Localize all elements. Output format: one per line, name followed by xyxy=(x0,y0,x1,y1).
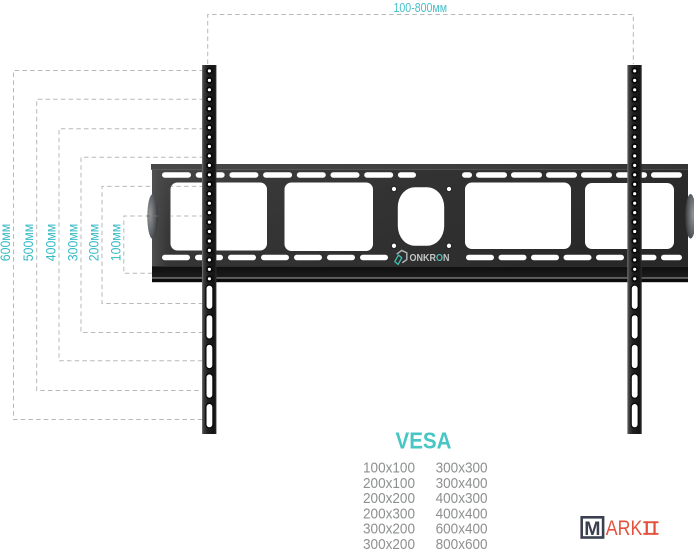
svg-text:400мм: 400мм xyxy=(44,224,59,262)
svg-text:300x300: 300x300 xyxy=(436,461,488,477)
svg-text:ONKRON: ONKRON xyxy=(410,252,450,264)
svg-text:200x300: 200x300 xyxy=(363,506,415,522)
svg-text:400x400: 400x400 xyxy=(436,506,488,522)
svg-text:600мм: 600мм xyxy=(0,224,13,262)
svg-text:300x200: 300x200 xyxy=(363,522,415,538)
svg-text:500мм: 500мм xyxy=(21,224,36,262)
svg-text:200x200: 200x200 xyxy=(363,491,415,507)
svg-text:100x100: 100x100 xyxy=(363,461,415,477)
svg-text:200мм: 200мм xyxy=(87,224,102,262)
svg-text:300мм: 300мм xyxy=(66,224,81,262)
svg-text:VESA: VESA xyxy=(396,427,452,453)
svg-text:300x200: 300x200 xyxy=(363,537,415,550)
svg-text:400x300: 400x300 xyxy=(436,491,488,507)
svg-text:100мм: 100мм xyxy=(108,224,123,262)
svg-text:800x600: 800x600 xyxy=(436,537,488,550)
svg-text:100-800мм: 100-800мм xyxy=(394,1,448,15)
svg-text:200x100: 200x100 xyxy=(363,476,415,492)
svg-text:ARK: ARK xyxy=(606,517,643,540)
svg-text:M: M xyxy=(584,518,600,540)
svg-text:300x400: 300x400 xyxy=(436,476,488,492)
svg-text:600x400: 600x400 xyxy=(436,522,488,538)
